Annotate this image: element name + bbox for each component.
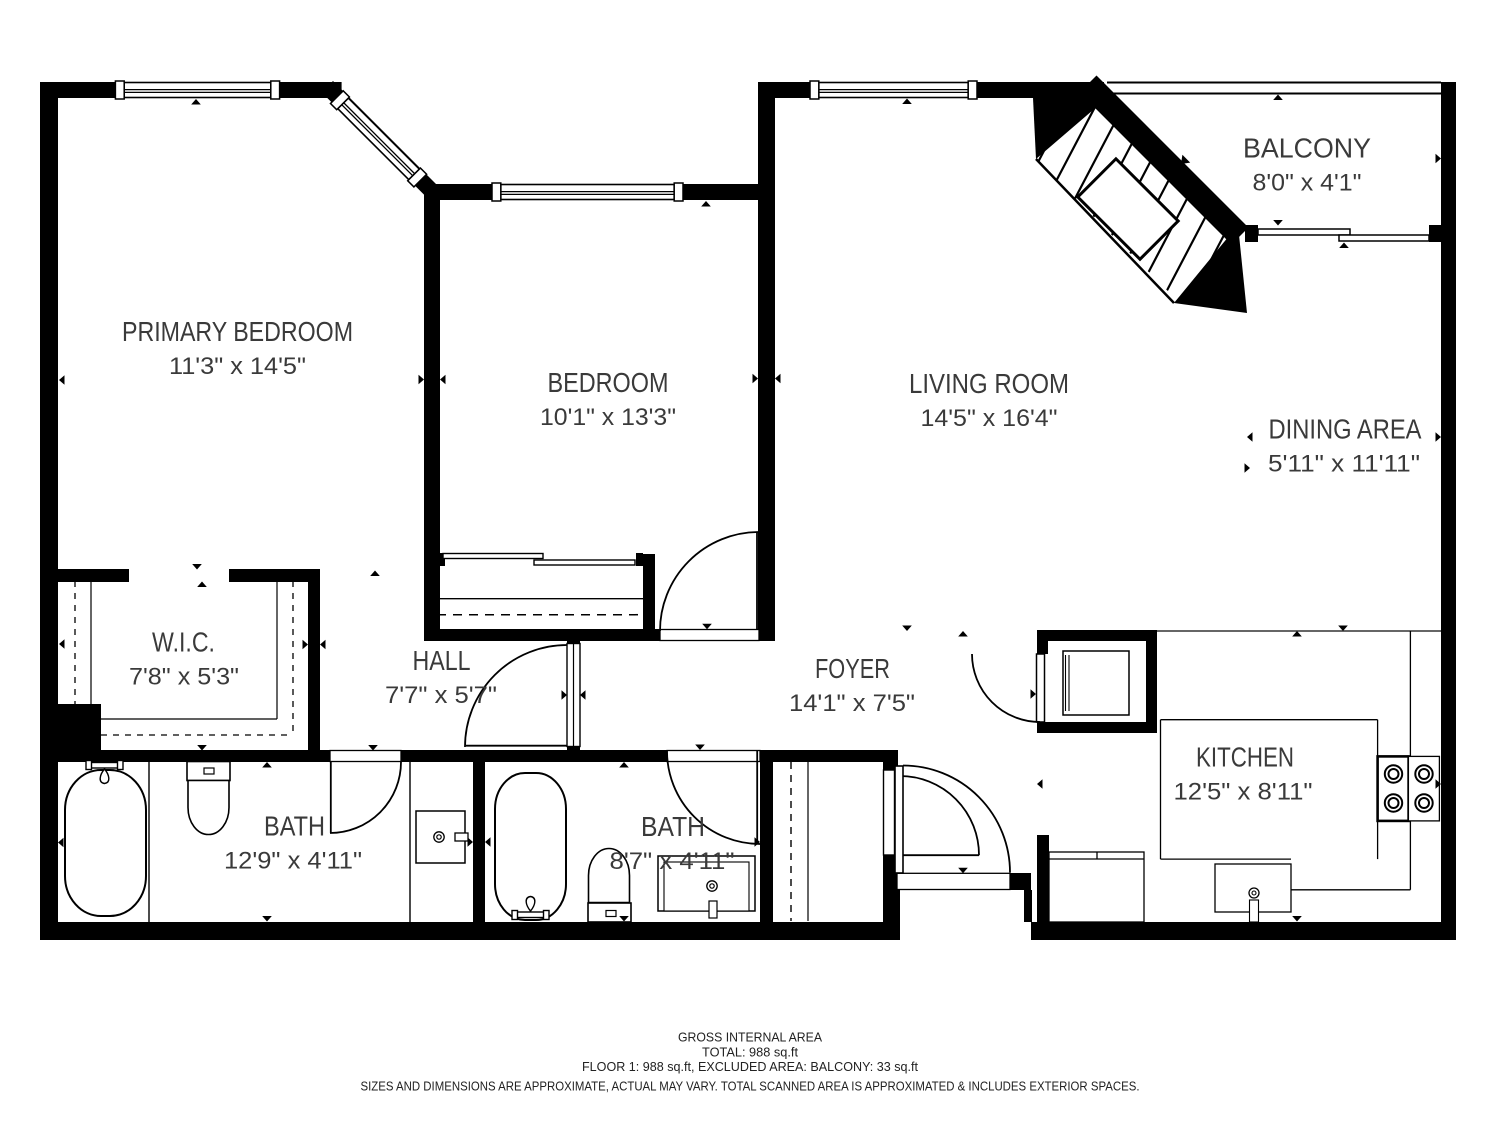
svg-text:FLOOR 1: 988 sq.ft, EXCLUDED A: FLOOR 1: 988 sq.ft, EXCLUDED AREA: BALCO… — [582, 1059, 918, 1074]
svg-text:BATH: BATH — [641, 811, 705, 842]
svg-text:SIZES AND DIMENSIONS ARE APPRO: SIZES AND DIMENSIONS ARE APPROXIMATE, AC… — [361, 1079, 1140, 1094]
svg-text:BEDROOM: BEDROOM — [548, 367, 669, 398]
svg-text:12'9" x 4'11": 12'9" x 4'11" — [224, 848, 362, 875]
svg-text:FOYER: FOYER — [815, 653, 890, 684]
svg-text:PRIMARY BEDROOM: PRIMARY BEDROOM — [122, 316, 353, 347]
svg-text:7'8" x 5'3": 7'8" x 5'3" — [129, 664, 239, 691]
svg-text:W.I.C.: W.I.C. — [152, 627, 215, 658]
svg-text:14'1" x 7'5": 14'1" x 7'5" — [789, 690, 915, 717]
svg-text:14'5" x 16'4": 14'5" x 16'4" — [921, 405, 1058, 432]
svg-text:8'7" x 4'11": 8'7" x 4'11" — [610, 848, 735, 875]
svg-text:HALL: HALL — [413, 645, 471, 676]
svg-text:KITCHEN: KITCHEN — [1196, 742, 1294, 773]
svg-text:TOTAL: 988 sq.ft: TOTAL: 988 sq.ft — [702, 1045, 798, 1060]
svg-text:8'0" x 4'1": 8'0" x 4'1" — [1253, 170, 1362, 197]
svg-text:7'7" x 5'7": 7'7" x 5'7" — [385, 682, 497, 709]
svg-text:11'3" x 14'5": 11'3" x 14'5" — [169, 353, 306, 380]
svg-text:GROSS INTERNAL AREA: GROSS INTERNAL AREA — [678, 1030, 822, 1045]
svg-text:5'11" x 11'11": 5'11" x 11'11" — [1268, 451, 1420, 478]
svg-text:12'5" x 8'11": 12'5" x 8'11" — [1174, 779, 1313, 806]
svg-text:BALCONY: BALCONY — [1243, 133, 1371, 164]
svg-text:LIVING ROOM: LIVING ROOM — [909, 368, 1069, 399]
svg-text:DINING AREA: DINING AREA — [1269, 414, 1422, 445]
svg-text:BATH: BATH — [264, 811, 325, 842]
svg-text:10'1" x 13'3": 10'1" x 13'3" — [540, 404, 676, 431]
